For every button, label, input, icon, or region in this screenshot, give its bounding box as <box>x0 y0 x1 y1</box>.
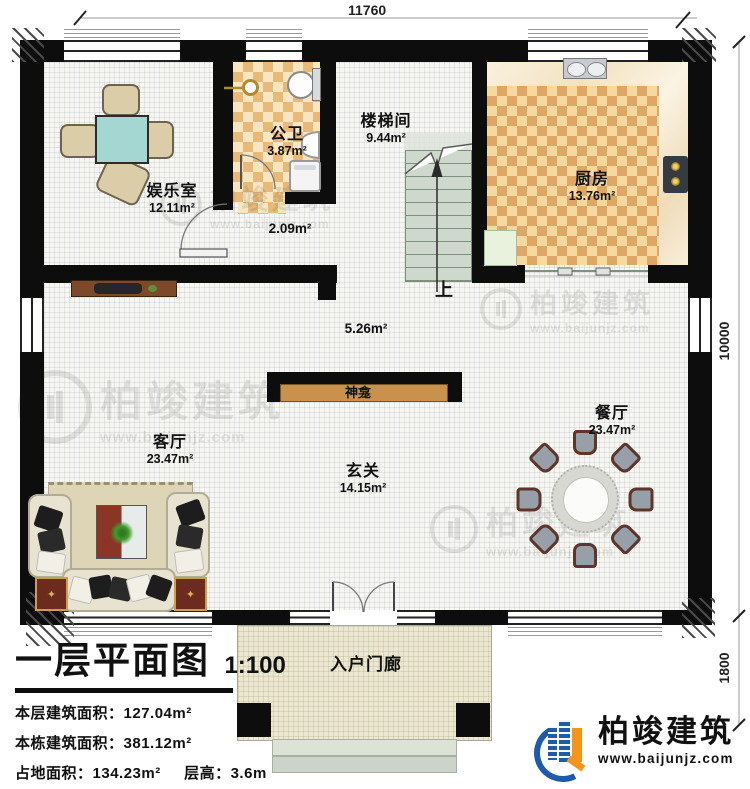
plan-scale: 1:100 <box>224 652 285 680</box>
brand-url: www.baijunjz.com <box>598 751 734 766</box>
label-shrine: 神龛 <box>345 386 371 401</box>
plant <box>110 521 134 545</box>
window-sill <box>64 29 180 38</box>
wall-corridor-bottom <box>20 265 337 283</box>
window-bottom-living <box>64 610 212 625</box>
entry-door-opening <box>330 610 397 625</box>
wall-kitchen-bottom-left <box>472 265 525 283</box>
toilet <box>287 71 315 99</box>
room-label-kitchen: 厨房 13.76m² <box>569 171 616 203</box>
wall-bathroom-stairwell <box>320 40 336 204</box>
bathroom-door-threshold <box>238 203 286 214</box>
dining-chair <box>517 488 542 512</box>
dimension-right-main: 10000 <box>716 319 732 363</box>
chair <box>102 84 140 116</box>
corner-hatch-bottom-right <box>682 598 715 638</box>
room-label-hall: 玄关 14.15m² <box>340 463 387 495</box>
dimension-top: 11760 <box>348 2 386 18</box>
side-table-left: ✦ <box>35 577 68 611</box>
dining-chair <box>573 543 597 568</box>
room-label-bathroom: 公卫 3.87m² <box>267 126 307 158</box>
area-label-corridor: 2.09m² <box>269 221 312 236</box>
brand-logo-icon <box>534 716 590 776</box>
dimension-right-porch: 1800 <box>716 649 732 687</box>
sofa-left <box>28 494 72 578</box>
side-table-right: ✦ <box>174 577 207 611</box>
building-area-line: 本栋建筑面积：381.12m² <box>15 732 286 753</box>
game-table <box>95 115 149 164</box>
window-right-dining <box>688 298 712 352</box>
wall-stairwell-stub <box>318 265 336 300</box>
window-door-sidelight-right <box>397 610 435 625</box>
window-door-sidelight-left <box>290 610 330 625</box>
stove <box>663 156 688 193</box>
coffee-table <box>96 505 147 559</box>
window-left-living <box>20 298 44 352</box>
room-label-living: 客厅 23.47m² <box>147 434 194 466</box>
brand-logo: 柏竣建筑 www.baijunjz.com <box>534 716 734 776</box>
title-block: 一层平面图 1:100 本层建筑面积：127.04m² 本栋建筑面积：381.1… <box>15 630 286 783</box>
room-label-porch: 入户门廊 <box>330 655 402 674</box>
mouse <box>148 285 157 292</box>
dining-chair <box>629 488 654 512</box>
stairs-up-label: 上 <box>435 280 453 300</box>
sofa-right <box>166 492 210 578</box>
window-top-bathroom <box>246 40 302 62</box>
porch-step-2 <box>272 756 457 773</box>
kitchen-sink <box>563 58 607 79</box>
washing-machine <box>289 160 321 192</box>
staircase <box>405 150 472 282</box>
window-top-entertainment <box>64 40 180 62</box>
room-label-entertainment: 娱乐室 12.11m² <box>146 183 197 215</box>
porch-step-1 <box>272 739 457 756</box>
footprint-line: 占地面积：134.23m² 层高：3.6m <box>15 762 286 783</box>
shower-head <box>242 79 259 96</box>
brand-name: 柏竣建筑 <box>598 716 734 747</box>
kitchen-cabinet <box>484 230 517 266</box>
tv-desk <box>71 280 177 297</box>
wall-bathroom-left <box>213 40 233 210</box>
corner-hatch-top-left <box>12 28 44 62</box>
room-label-stairwell: 楼梯间 9.44m² <box>360 113 411 145</box>
porch-column-right <box>456 703 490 737</box>
monitor <box>94 283 142 294</box>
dining-table <box>551 465 619 533</box>
title-underline <box>15 688 233 693</box>
floor-plan: 柏竣建筑 www.baijunjz.com 柏竣建筑 www.baijunjz.… <box>0 0 750 789</box>
plan-title: 一层平面图 <box>15 630 210 684</box>
sofa-bottom <box>62 568 176 612</box>
window-sill <box>508 627 662 636</box>
floor-area-line: 本层建筑面积：127.04m² <box>15 702 286 723</box>
window-sill <box>528 29 648 38</box>
room-label-dining: 餐厅 23.47m² <box>589 405 636 437</box>
wall-kitchen-bottom-right <box>648 265 690 283</box>
toilet-tank <box>312 68 321 101</box>
chair <box>60 124 100 158</box>
window-sill <box>246 29 302 38</box>
area-label-hall-upper: 5.26m² <box>345 321 388 336</box>
window-bottom-dining <box>508 610 662 625</box>
corner-hatch-top-right <box>682 28 716 62</box>
